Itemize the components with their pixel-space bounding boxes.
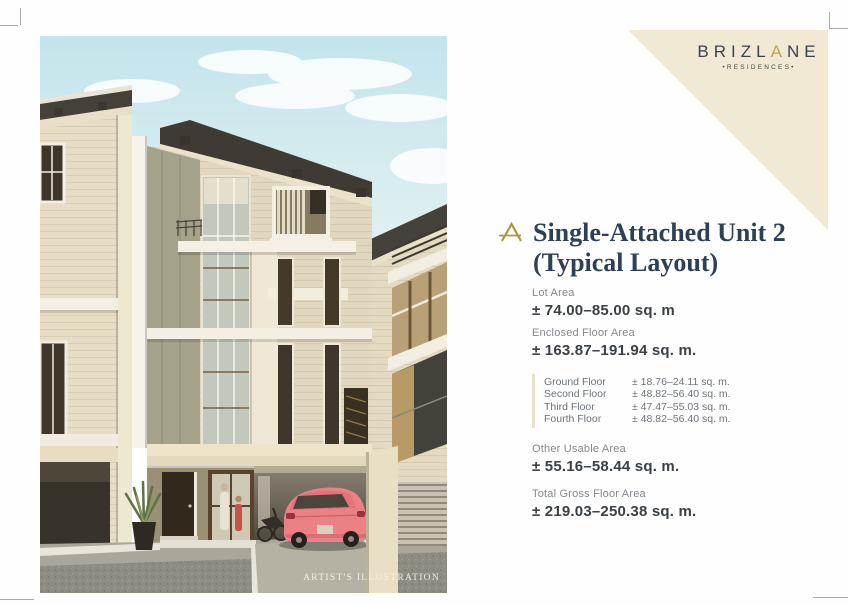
page-title-line1: Single-Attached Unit 2 bbox=[533, 218, 786, 247]
spec-label: Enclosed Floor Area bbox=[532, 327, 696, 339]
curtain-window bbox=[270, 186, 332, 243]
floor-value: ± 48.82–56.40 sq. m. bbox=[632, 388, 731, 400]
entry-door bbox=[160, 472, 198, 542]
floor-value: ± 18.76–24.11 sq. m. bbox=[632, 376, 730, 388]
cropmark-top-left-v bbox=[20, 8, 21, 25]
brand-logo-name: BRIZLANE bbox=[694, 42, 824, 62]
facade-fin bbox=[132, 136, 147, 448]
page-title: Single-Attached Unit 2 (Typical Layout) bbox=[533, 218, 786, 278]
illustration-caption: ARTIST'S ILLUSTRATION bbox=[303, 573, 440, 583]
floor-value: ± 48.82–56.40 sq. m. bbox=[632, 413, 731, 425]
spec-label: Lot Area bbox=[532, 287, 675, 299]
grille-panel bbox=[344, 388, 368, 446]
table-row: Fourth Floor ± 48.82–56.40 sq. m. bbox=[544, 413, 731, 425]
spec-label: Other Usable Area bbox=[532, 443, 679, 455]
cropmark-top-right-v bbox=[829, 12, 830, 29]
floor-breakdown-table: Ground Floor ± 18.76–24.11 sq. m. Second… bbox=[532, 374, 731, 428]
brochure-page: ARTIST'S ILLUSTRATION BRIZLANE •RESIDENC… bbox=[0, 0, 848, 605]
cropmark-top-right-h bbox=[830, 28, 848, 29]
floor-label: Third Floor bbox=[544, 401, 632, 413]
floor-label: Fourth Floor bbox=[544, 413, 632, 425]
spec-value: ± 219.03–250.38 sq. m. bbox=[532, 503, 696, 520]
spec-value: ± 55.16–58.44 sq. m. bbox=[532, 458, 679, 475]
spec-lot-area: Lot Area ± 74.00–85.00 sq. m bbox=[532, 287, 675, 319]
left-building bbox=[40, 85, 132, 544]
spec-value: ± 163.87–191.94 sq. m. bbox=[532, 342, 696, 359]
floor-label: Second Floor bbox=[544, 388, 632, 400]
spec-enclosed-floor-area: Enclosed Floor Area ± 163.87–191.94 sq. … bbox=[532, 327, 696, 359]
spec-label: Total Gross Floor Area bbox=[532, 488, 696, 500]
building-rendering: ARTIST'S ILLUSTRATION bbox=[40, 36, 447, 593]
spec-value: ± 74.00–85.00 sq. m bbox=[532, 302, 675, 319]
spec-total-gross-floor-area: Total Gross Floor Area ± 219.03–250.38 s… bbox=[532, 488, 696, 520]
cropmark-top-left-h bbox=[0, 25, 18, 26]
title-block: Single-Attached Unit 2 (Typical Layout) bbox=[499, 218, 786, 278]
brand-logo-accent-letter: A bbox=[771, 42, 787, 61]
table-row: Ground Floor ± 18.76–24.11 sq. m. bbox=[544, 376, 731, 388]
spec-other-usable-area: Other Usable Area ± 55.16–58.44 sq. m. bbox=[532, 443, 679, 475]
entry-vestibule bbox=[208, 470, 254, 548]
brand-a-icon bbox=[499, 221, 524, 243]
brand-logo-subtitle: •RESIDENCES• bbox=[694, 64, 824, 71]
cropmark-bottom-right-h bbox=[813, 597, 848, 598]
brand-logo: BRIZLANE •RESIDENCES• bbox=[694, 42, 824, 71]
page-title-line2: (Typical Layout) bbox=[533, 248, 718, 277]
center-building bbox=[147, 120, 372, 548]
table-row: Second Floor ± 48.82–56.40 sq. m. bbox=[544, 388, 731, 400]
table-row: Third Floor ± 47.47–55.03 sq. m. bbox=[544, 401, 731, 413]
cropmark-bottom-left-h bbox=[0, 599, 34, 600]
floor-label: Ground Floor bbox=[544, 376, 632, 388]
floor-value: ± 47.47–55.03 sq. m. bbox=[632, 401, 731, 413]
